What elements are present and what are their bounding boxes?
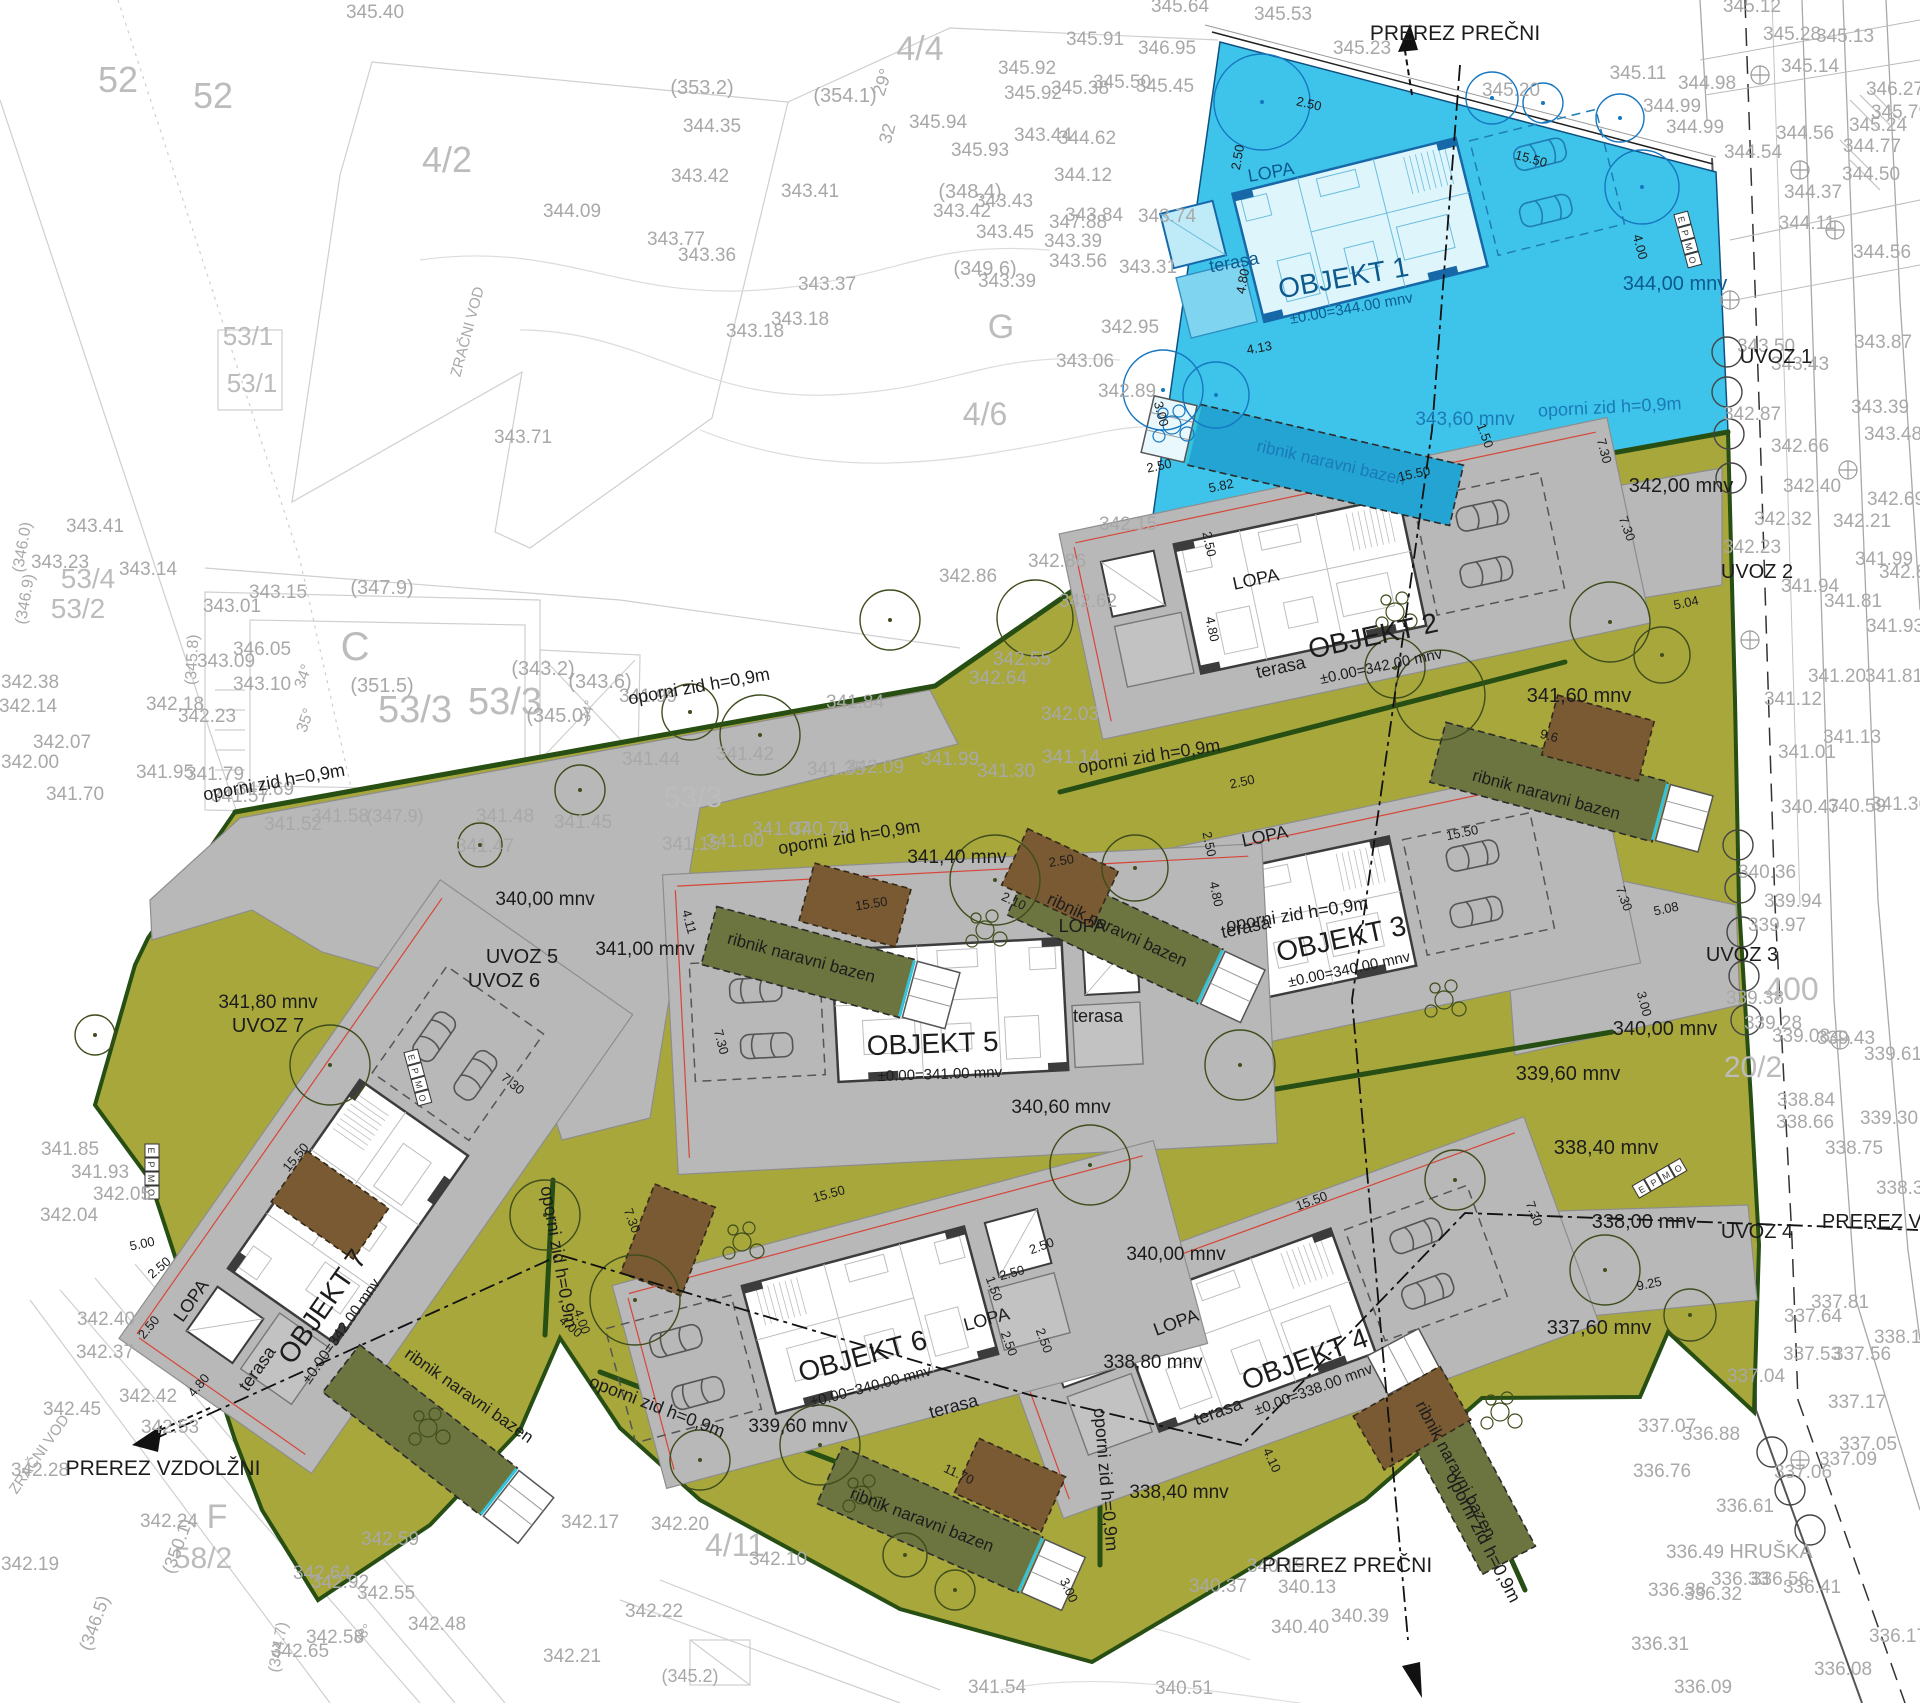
map-label: 345.93 (951, 140, 1009, 161)
map-label: 345.53 (1254, 4, 1312, 25)
map-label: UVOZ 1 (1740, 346, 1812, 368)
map-label: 343,60 mnv (1415, 409, 1515, 430)
map-label: 341.81 (1865, 666, 1920, 687)
map-label: 53/3 (664, 781, 722, 814)
map-label: F (207, 1498, 228, 1536)
map-label: 343.01 (203, 596, 261, 617)
map-label: 344.56 (1776, 123, 1834, 144)
map-label: 341.44 (622, 749, 681, 770)
map-label: 341.70 (46, 784, 104, 805)
map-label: 336.88 (1682, 1424, 1740, 1445)
tree-icon (860, 590, 920, 650)
map-label: 339.30 (1860, 1108, 1918, 1129)
map-label: 341.99 (921, 749, 979, 770)
map-label: 341.01 (1778, 742, 1836, 763)
map-label: 342.15 (1099, 514, 1157, 535)
map-label: 343.56 (1049, 251, 1107, 272)
map-label: 338,40 mnv (1554, 1137, 1659, 1159)
map-label: 345.45 (1136, 76, 1194, 97)
map-label: 345.20 (1482, 80, 1540, 101)
map-label: 345.11 (1610, 63, 1667, 84)
map-label: 342.40 (77, 1309, 135, 1330)
map-label: 342.62 (1059, 591, 1117, 612)
map-label: 343.74 (1138, 206, 1197, 227)
map-label: 343.39 (978, 271, 1036, 292)
map-label: 343.71 (494, 427, 552, 448)
map-label: 341.58 (311, 806, 369, 827)
map-label: 342,00 mnv (1629, 475, 1734, 497)
map-label: PREREZ PREČNI (1370, 22, 1540, 45)
map-label: 342.23 (1723, 537, 1781, 558)
map-label: 341.81 (1824, 591, 1882, 612)
utility-pole-icon (1741, 631, 1759, 649)
map-label: 341.20 (1808, 666, 1866, 687)
svg-text:M: M (146, 1175, 156, 1183)
site-plan: EPMOEPMOEPMOEPMO 345.4052524/24/4(354.1)… (0, 0, 1920, 1703)
map-label: 29° (869, 66, 896, 98)
map-label: (346.9) (13, 573, 39, 626)
map-label: 343.37 (798, 274, 856, 295)
map-label: 343.41 (66, 516, 124, 537)
map-label: 345.13 (1816, 26, 1874, 47)
map-label: 341.85 (41, 1139, 99, 1160)
map-label: 337.17 (1828, 1392, 1886, 1413)
map-label: 342.64 (969, 668, 1028, 689)
map-label: 340.37 (1189, 1576, 1247, 1597)
map-label: 344.62 (1058, 128, 1116, 149)
map-label: (354.1) (813, 85, 876, 107)
map-label: 344.56 (1853, 242, 1911, 263)
map-label: 345.64 (1151, 0, 1210, 17)
utility-pole-icon (1791, 161, 1809, 179)
map-label: 341,40 mnv (907, 847, 1007, 868)
map-label: 345.24 (1849, 115, 1908, 136)
map-label: 34° (577, 698, 598, 723)
map-label: 336.17 (1869, 1626, 1920, 1647)
map-label: 341.54 (968, 1677, 1027, 1698)
svg-text:E: E (146, 1147, 156, 1153)
map-label: (345.8) (183, 634, 203, 686)
map-label: 342.86 (939, 566, 997, 587)
map-label: 342.40 (1783, 476, 1841, 497)
map-label: 342.32 (1754, 509, 1812, 530)
map-label: ZRAČNI VOD (447, 285, 487, 379)
map-label: 343.41 (781, 181, 839, 202)
map-label: 342.09 (846, 757, 904, 778)
map-label: 342.53 (141, 1417, 199, 1438)
map-label: 343.09 (197, 651, 255, 672)
map-label: 341.30 (977, 761, 1035, 782)
map-label: (347.9) (350, 577, 413, 599)
map-label: (346.5) (75, 1593, 113, 1653)
map-label: 343.42 (671, 166, 729, 187)
map-label: 342.17 (561, 1512, 619, 1533)
map-label: 338.75 (1825, 1138, 1883, 1159)
map-label: 340.36 (1738, 862, 1796, 883)
map-label: 5.00 (128, 1234, 156, 1254)
map-label: 342.64 (293, 1563, 352, 1584)
map-label: 337.06 (1774, 1462, 1832, 1483)
map-label: 336.32 (1684, 1584, 1742, 1605)
map-label: 344.35 (683, 116, 741, 137)
map-label: 345.40 (346, 2, 404, 23)
map-label: (353.2) (670, 77, 733, 99)
map-label: 345.94 (909, 112, 968, 133)
map-label: OBJEKT 5 (866, 1026, 999, 1062)
map-label: 343.10 (233, 674, 291, 695)
map-label: 341.36 (1871, 794, 1920, 815)
map-label: 341.45 (554, 812, 612, 833)
map-label: 339,60 mnv (1516, 1063, 1621, 1085)
map-label: 52 (193, 75, 233, 116)
map-label: 345.91 (1066, 29, 1124, 50)
map-label: 337.64 (1784, 1306, 1843, 1327)
map-label: 344,00 mnv (1623, 273, 1728, 295)
map-label: 343.39 (1851, 397, 1909, 418)
map-label: 344.77 (1843, 136, 1901, 157)
map-label: 339.61 (1864, 1044, 1920, 1065)
map-label: ZRAČNI VOD (6, 1412, 73, 1498)
map-label: UVOZ 5 (486, 946, 558, 968)
map-label: 342.23 (178, 706, 236, 727)
map-label: 345.14 (1781, 56, 1840, 77)
map-label: 343.18 (771, 309, 829, 330)
map-label: 342.04 (40, 1205, 99, 1226)
map-label: (345.2) (661, 1666, 718, 1686)
map-label: 343.42 (933, 201, 991, 222)
map-label: 346.27 (1866, 79, 1920, 100)
map-label: 342.00 (1, 752, 59, 773)
map-label: 340,60 mnv (1011, 1097, 1111, 1118)
map-label: 343.87 (1854, 332, 1912, 353)
map-label: 341,00 mnv (595, 939, 695, 960)
map-label: 34° (292, 662, 316, 691)
map-label: 340,00 mnv (1126, 1244, 1226, 1265)
map-label: UVOZ 6 (468, 970, 540, 992)
map-label: 336.09 (1674, 1677, 1732, 1698)
tree-icon (1596, 94, 1644, 142)
map-label: 4/6 (963, 396, 1007, 432)
map-label: 53/2 (51, 593, 106, 624)
map-label: 20/2 (1724, 1051, 1782, 1084)
map-label: 4/4 (896, 30, 943, 68)
map-label: 342.69 (1867, 489, 1920, 510)
map-label: 342.48 (408, 1614, 466, 1635)
map-label: 342.42 (119, 1386, 177, 1407)
map-label: 341.48 (476, 806, 534, 827)
map-label: 343.36 (678, 245, 736, 266)
map-label: 53/3 (378, 689, 452, 731)
map-label: 336.76 (1633, 1461, 1691, 1482)
map-label: 341.84 (826, 692, 885, 713)
map-label: 339.94 (1764, 891, 1823, 912)
map-label: 35° (294, 706, 318, 735)
map-label: 343.14 (119, 559, 178, 580)
map-label: 338,80 mnv (1103, 1352, 1203, 1373)
utility-pole-icon (1839, 461, 1857, 479)
map-label: 342.38 (1, 672, 59, 693)
map-label: 338,40 mnv (1129, 1482, 1229, 1503)
map-label: 338.12 (1874, 1327, 1920, 1348)
map-label: G (988, 308, 1014, 346)
map-label: UVOZ 2 (1721, 561, 1793, 583)
map-label: 338.84 (1777, 1090, 1836, 1111)
map-label: 343.45 (976, 222, 1034, 243)
map-label: 342.21 (543, 1646, 601, 1667)
map-label: 53/1 (223, 321, 274, 351)
map-label: UVOZ 4 (1721, 1221, 1793, 1243)
map-label: 342.95 (1101, 317, 1159, 338)
map-label: UVOZ 7 (232, 1015, 304, 1037)
building-5-group (663, 843, 1278, 1174)
map-label: 343.31 (1119, 257, 1177, 278)
map-label: 342.22 (625, 1601, 683, 1622)
map-label: 342.55 (357, 1583, 415, 1604)
map-label: C (341, 625, 370, 669)
map-label: 342.66 (1771, 436, 1829, 457)
map-label: 344.98 (1678, 73, 1736, 94)
map-label: 346.95 (1138, 38, 1196, 59)
map-label: 336.41 (1783, 1577, 1841, 1598)
map-label: 344.54 (1724, 142, 1783, 163)
map-label: 344.99 (1666, 117, 1724, 138)
map-label: 341.42 (716, 744, 774, 765)
map-label: 342.19 (1, 1554, 59, 1575)
section-arrow-bottom (1402, 1662, 1422, 1698)
map-label: 342.89 (1098, 381, 1156, 402)
map-label: 338,00 mnv (1592, 1211, 1697, 1233)
utility-pole-icon (1751, 66, 1769, 84)
map-label: 342.59 (361, 1529, 419, 1550)
map-label: 53/1 (227, 368, 278, 398)
map-label: 342.86 (1028, 551, 1086, 572)
map-label: 345.12 (1723, 0, 1781, 17)
map-label: 338.66 (1776, 1112, 1834, 1133)
map-label: 343.39 (1044, 231, 1102, 252)
map-label: 344.37 (1784, 182, 1842, 203)
map-label: 336.49 (1666, 1542, 1724, 1563)
map-label: terasa (1073, 1006, 1124, 1026)
map-label: 341,60 mnv (1527, 685, 1632, 707)
map-label: 342.83 (1879, 562, 1920, 583)
map-label: PREREZ PREČNI (1262, 1554, 1432, 1577)
map-label: HRUŠKA (1729, 1540, 1813, 1563)
map-label: PREREZ VZDOLŽNI (66, 1457, 261, 1480)
map-label: 337.04 (1727, 1366, 1786, 1387)
map-label: 337,60 mnv (1547, 1317, 1652, 1339)
map-label: 342.87 (1723, 404, 1781, 425)
map-label: 341.12 (1764, 689, 1822, 710)
map-label: 343.84 (1065, 205, 1124, 226)
map-label: 336.31 (1631, 1634, 1689, 1655)
map-label: 340.39 (1331, 1606, 1389, 1627)
map-label: 341.93 (71, 1162, 129, 1183)
map-label: 342.20 (651, 1514, 709, 1535)
map-label: 340.13 (1278, 1577, 1336, 1598)
map-label: 342.55 (993, 649, 1051, 670)
map-label: 341,80 mnv (218, 992, 318, 1013)
map-label: 342.21 (1833, 511, 1891, 532)
map-label: 400 (1765, 971, 1818, 1007)
building-2-terrace (1115, 612, 1194, 687)
map-label: 343.23 (31, 552, 89, 573)
map-label: 336.61 (1716, 1496, 1774, 1517)
map-label: PREREZ VZ (1822, 1211, 1920, 1233)
map-label: 336.08 (1814, 1659, 1872, 1680)
map-label: 339,60 mnv (748, 1416, 848, 1437)
map-label: 341.47 (456, 836, 514, 857)
map-label: (343.2) (511, 658, 574, 680)
map-label: 343.06 (1056, 351, 1114, 372)
map-label: 342.07 (33, 732, 91, 753)
map-label: 344.99 (1643, 96, 1701, 117)
map-label: 339.97 (1748, 915, 1806, 936)
map-label: (347.9) (366, 806, 423, 826)
map-label: 340,00 mnv (1613, 1018, 1718, 1040)
map-label: 341.93 (1866, 616, 1920, 637)
map-label: 342.03 (1041, 704, 1099, 725)
map-label: UVOZ 3 (1706, 944, 1778, 966)
map-label: 32 (875, 121, 900, 146)
map-label: 340.51 (1155, 1678, 1213, 1699)
map-label: 344.09 (543, 201, 601, 222)
map-label: 342.37 (76, 1342, 134, 1363)
map-label: 342.14 (0, 696, 57, 717)
map-label: oporni zid h=0,9m (627, 664, 772, 709)
map-label: 344.50 (1842, 164, 1900, 185)
map-label: 338.36 (1876, 1178, 1920, 1199)
map-label: 344.12 (1054, 165, 1112, 186)
map-label: 340,00 mnv (495, 889, 595, 910)
tree-icon (75, 1015, 115, 1055)
map-label: 342.05 (93, 1184, 151, 1205)
map-label: 345.28 (1763, 24, 1821, 45)
map-label: 52 (98, 59, 138, 100)
map-label: 340.40 (1271, 1617, 1329, 1638)
map-label: 342.10 (749, 1549, 807, 1570)
map-label: 342.45 (43, 1399, 101, 1420)
map-label: 343.48 (1864, 424, 1920, 445)
svg-text:P: P (146, 1161, 156, 1167)
map-label: 344.11 (1779, 213, 1836, 234)
map-label: 345.92 (998, 58, 1056, 79)
map-label: 4/2 (422, 139, 472, 180)
